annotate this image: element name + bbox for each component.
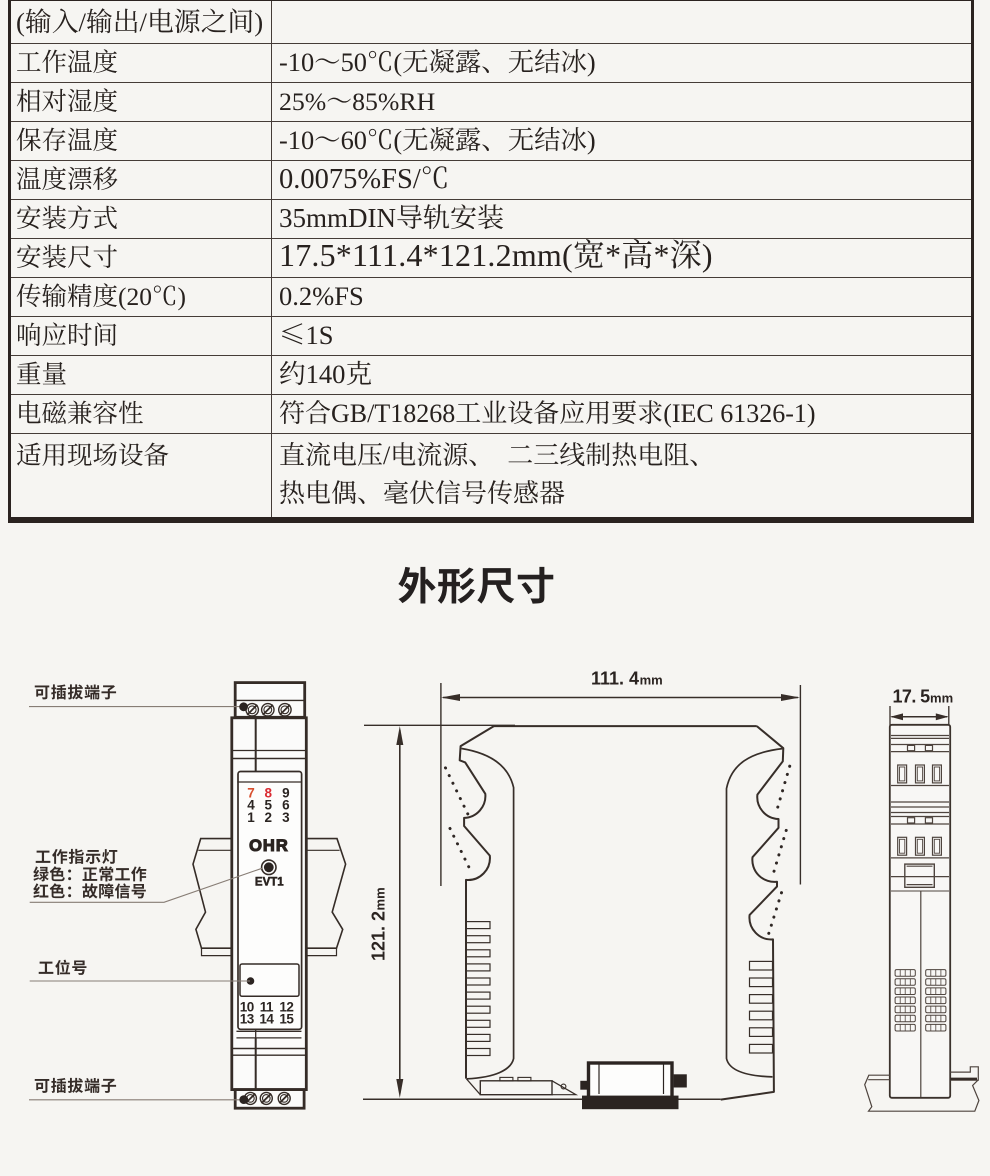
svg-text:2: 2 bbox=[264, 810, 272, 825]
svg-text:13: 13 bbox=[240, 1011, 255, 1026]
svg-text:工位号: 工位号 bbox=[38, 954, 88, 978]
svg-text:1: 1 bbox=[247, 810, 255, 825]
svg-text:121. 2mm: 121. 2mm bbox=[369, 887, 389, 961]
svg-text:可插拔端子: 可插拔端子 bbox=[34, 679, 118, 703]
svg-text:OHR: OHR bbox=[249, 837, 289, 855]
svg-text:可插拔端子: 可插拔端子 bbox=[34, 1072, 118, 1096]
svg-text:14: 14 bbox=[259, 1011, 274, 1026]
svg-text:EVT1: EVT1 bbox=[255, 877, 284, 889]
svg-text:15: 15 bbox=[279, 1011, 294, 1026]
svg-text:111. 4mm: 111. 4mm bbox=[591, 669, 663, 689]
svg-text:17. 5mm: 17. 5mm bbox=[893, 687, 954, 707]
svg-text:红色：故障信号: 红色：故障信号 bbox=[33, 878, 147, 902]
svg-text:3: 3 bbox=[282, 810, 290, 825]
